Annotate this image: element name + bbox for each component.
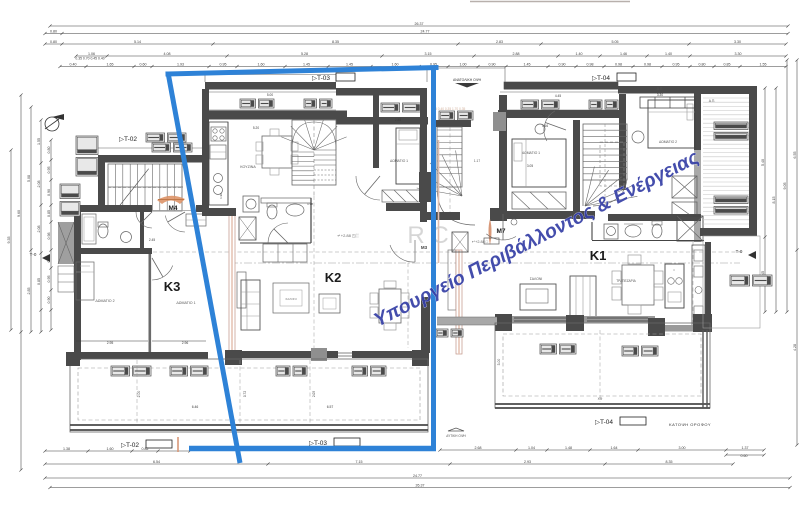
svg-text:R C: R C bbox=[407, 222, 448, 249]
svg-text:8.35: 8.35 bbox=[666, 460, 673, 464]
svg-text:24.77: 24.77 bbox=[413, 474, 422, 478]
svg-text:7.15: 7.15 bbox=[356, 460, 363, 464]
svg-text:0.80: 0.80 bbox=[50, 40, 57, 44]
svg-text:1.17: 1.17 bbox=[474, 159, 480, 163]
svg-text:4.45: 4.45 bbox=[555, 94, 561, 98]
svg-text:3.66: 3.66 bbox=[542, 124, 548, 128]
svg-text:ΑΝΑΤΟΛΙΚΗ ΟΨΗ: ΑΝΑΤΟΛΙΚΗ ΟΨΗ bbox=[453, 78, 482, 82]
svg-text:2.95: 2.95 bbox=[107, 341, 114, 345]
svg-text:5.00: 5.00 bbox=[267, 93, 273, 97]
svg-text:0.98: 0.98 bbox=[644, 62, 651, 66]
svg-text:5.05: 5.05 bbox=[612, 40, 619, 44]
svg-text:0.98: 0.98 bbox=[47, 233, 51, 240]
svg-text:4.08: 4.08 bbox=[164, 52, 171, 56]
svg-text:▷T-04: ▷T-04 bbox=[595, 419, 613, 426]
svg-text:9.35: 9.35 bbox=[7, 237, 11, 244]
svg-text:0.85: 0.85 bbox=[47, 210, 51, 217]
svg-text:2.85: 2.85 bbox=[395, 118, 401, 122]
svg-text:ΚΟΥΖΙΝΑ: ΚΟΥΖΙΝΑ bbox=[240, 165, 256, 169]
svg-text:6.55: 6.55 bbox=[793, 152, 797, 159]
svg-text:ΣΑΛΟΝΙ: ΣΑΛΟΝΙ bbox=[530, 277, 543, 281]
svg-text:▷T-03: ▷T-03 bbox=[312, 75, 330, 82]
svg-text:3.15: 3.15 bbox=[425, 52, 432, 56]
svg-text:5.40: 5.40 bbox=[761, 159, 765, 166]
svg-text:1.45: 1.45 bbox=[346, 62, 353, 66]
svg-text:1.55: 1.55 bbox=[760, 62, 767, 66]
svg-text:0.60: 0.60 bbox=[140, 62, 147, 66]
svg-text:8.15: 8.15 bbox=[772, 197, 776, 204]
svg-text:M4: M4 bbox=[168, 205, 177, 212]
svg-text:1.93: 1.93 bbox=[177, 62, 184, 66]
svg-text:ΔΩΜΑΤΙΟ 1: ΔΩΜΑΤΙΟ 1 bbox=[390, 159, 408, 163]
svg-text:1.90: 1.90 bbox=[219, 193, 223, 199]
svg-text:Τ-0: Τ-0 bbox=[736, 249, 743, 254]
svg-text:2.68: 2.68 bbox=[475, 446, 482, 450]
svg-text:2.93: 2.93 bbox=[524, 460, 531, 464]
svg-text:1.06: 1.06 bbox=[88, 52, 95, 56]
svg-text:2.08: 2.08 bbox=[37, 181, 41, 188]
svg-text:0.40: 0.40 bbox=[70, 62, 77, 66]
svg-text:Α.Π.: Α.Π. bbox=[709, 99, 716, 103]
svg-text:3.00: 3.00 bbox=[679, 446, 686, 450]
svg-text:0.90: 0.90 bbox=[489, 62, 496, 66]
svg-text:3.30: 3.30 bbox=[734, 40, 741, 44]
svg-text:0.85: 0.85 bbox=[37, 278, 41, 285]
svg-text:6.54: 6.54 bbox=[153, 460, 160, 464]
svg-text:1.98: 1.98 bbox=[307, 202, 313, 206]
svg-text:ΔΩΜΑΤΙΟ 2: ΔΩΜΑΤΙΟ 2 bbox=[659, 140, 677, 144]
svg-text:Τ-0: Τ-0 bbox=[30, 252, 37, 257]
svg-text:2.88: 2.88 bbox=[513, 52, 520, 56]
svg-text:1.64: 1.64 bbox=[611, 446, 618, 450]
svg-text:2.45: 2.45 bbox=[149, 238, 155, 242]
svg-text:26.37: 26.37 bbox=[416, 483, 425, 487]
svg-text:26.37: 26.37 bbox=[415, 22, 424, 26]
svg-text:ΣΑΛΟΝΙ: ΣΑΛΟΝΙ bbox=[285, 297, 296, 301]
svg-text:0.95: 0.95 bbox=[47, 167, 51, 174]
svg-text:K1: K1 bbox=[590, 248, 607, 263]
svg-text:2.08: 2.08 bbox=[37, 226, 41, 233]
svg-text:0.90: 0.90 bbox=[47, 189, 51, 196]
svg-text:K2: K2 bbox=[325, 270, 342, 285]
svg-text:1.38: 1.38 bbox=[63, 447, 70, 451]
svg-text:2.05: 2.05 bbox=[312, 391, 316, 397]
svg-text:ΔΩΜΑΤΙΟ 1: ΔΩΜΑΤΙΟ 1 bbox=[522, 151, 540, 155]
svg-text:↵+2.88 □: ↵+2.88 □ bbox=[472, 240, 489, 244]
svg-text:0.80: 0.80 bbox=[699, 62, 706, 66]
svg-text:0.85: 0.85 bbox=[724, 62, 731, 66]
svg-text:2.85: 2.85 bbox=[27, 288, 31, 295]
svg-text:2.83: 2.83 bbox=[496, 40, 503, 44]
svg-text:Α.Π.: Α.Π. bbox=[657, 87, 664, 91]
svg-text:1.60: 1.60 bbox=[258, 62, 265, 66]
svg-text:0.72: 0.72 bbox=[243, 391, 247, 397]
svg-text:2.96: 2.96 bbox=[182, 341, 189, 345]
svg-text:1.65: 1.65 bbox=[107, 62, 114, 66]
svg-text:1.45: 1.45 bbox=[524, 62, 531, 66]
svg-text:0.95: 0.95 bbox=[220, 62, 227, 66]
svg-text:□: □ bbox=[673, 268, 675, 272]
svg-text:3.30: 3.30 bbox=[735, 52, 742, 56]
svg-text:ΔΩΜΑΤΙΟ 2: ΔΩΜΑΤΙΟ 2 bbox=[95, 299, 114, 303]
svg-text:5.14: 5.14 bbox=[134, 40, 141, 44]
svg-text:ΤΡΑΠΕΖΑΡΙΑ: ΤΡΑΠΕΖΑΡΙΑ bbox=[616, 279, 636, 283]
svg-text:▷T-02: ▷T-02 bbox=[121, 442, 139, 449]
svg-text:1.60: 1.60 bbox=[107, 447, 114, 451]
svg-text:▷T-04: ▷T-04 bbox=[592, 75, 610, 82]
svg-text:1.40: 1.40 bbox=[576, 52, 583, 56]
svg-text:1.40: 1.40 bbox=[665, 52, 672, 56]
svg-text:8.35: 8.35 bbox=[332, 40, 339, 44]
svg-text:3.30: 3.30 bbox=[657, 93, 663, 97]
svg-text:5.28: 5.28 bbox=[301, 52, 308, 56]
svg-text:9.05: 9.05 bbox=[783, 183, 787, 190]
svg-text:3.00: 3.00 bbox=[497, 359, 501, 366]
svg-text:K3: K3 bbox=[164, 279, 181, 294]
svg-text:0.60: 0.60 bbox=[741, 454, 748, 458]
svg-text:ΔΥΤΙΚΗ ΟΨΗ: ΔΥΤΙΚΗ ΟΨΗ bbox=[446, 434, 466, 438]
svg-text:5.08: 5.08 bbox=[27, 175, 31, 182]
svg-text:1.45: 1.45 bbox=[303, 62, 310, 66]
svg-text:ΚΑΤΟΨΗ ΟΡΟΦΟΥ: ΚΑΤΟΨΗ ΟΡΟΦΟΥ bbox=[669, 422, 711, 427]
svg-text:1.00: 1.00 bbox=[460, 62, 467, 66]
svg-text:5.20: 5.20 bbox=[253, 126, 259, 130]
svg-text:0.82: 0.82 bbox=[142, 447, 149, 451]
svg-text:24.77: 24.77 bbox=[421, 29, 430, 33]
svg-text:1.46: 1.46 bbox=[620, 52, 627, 56]
svg-text:9.60: 9.60 bbox=[17, 210, 21, 217]
svg-text:1.04: 1.04 bbox=[528, 446, 535, 450]
svg-text:3.05: 3.05 bbox=[527, 164, 533, 168]
svg-text:0.95: 0.95 bbox=[673, 62, 680, 66]
svg-text:1.37: 1.37 bbox=[742, 446, 749, 450]
svg-text:ΔΩΜΑΤΙΟ 1: ΔΩΜΑΤΙΟ 1 bbox=[176, 301, 195, 305]
svg-text:0.95: 0.95 bbox=[47, 276, 51, 283]
svg-text:4.28: 4.28 bbox=[793, 344, 797, 351]
svg-text:↵+2.88 ◳░: ↵+2.88 ◳░ bbox=[337, 233, 358, 238]
svg-text:0.90: 0.90 bbox=[47, 297, 51, 304]
svg-text:2.00: 2.00 bbox=[137, 391, 141, 398]
svg-text:0.80: 0.80 bbox=[47, 147, 51, 154]
svg-text:0.98: 0.98 bbox=[615, 62, 622, 66]
svg-text:0.35 0.70 0.45 0.40: 0.35 0.70 0.45 0.40 bbox=[75, 57, 104, 61]
svg-text:▷T-02: ▷T-02 bbox=[119, 136, 137, 143]
svg-text:1.60: 1.60 bbox=[392, 62, 399, 66]
svg-text:0.98: 0.98 bbox=[587, 62, 594, 66]
svg-text:M7: M7 bbox=[496, 228, 505, 235]
svg-text:0.80: 0.80 bbox=[50, 29, 57, 33]
svg-text:6.46: 6.46 bbox=[192, 405, 199, 409]
svg-text:6.57: 6.57 bbox=[327, 405, 334, 409]
svg-text:1.55: 1.55 bbox=[37, 138, 41, 145]
svg-text:0.90: 0.90 bbox=[559, 62, 566, 66]
svg-text:1.48: 1.48 bbox=[565, 446, 572, 450]
